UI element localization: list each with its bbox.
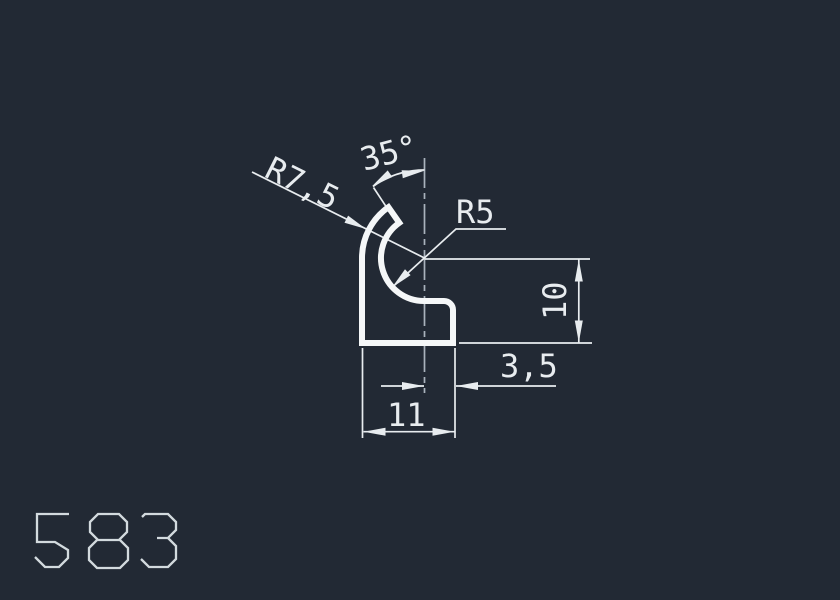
arrowhead <box>402 170 424 178</box>
arrowhead <box>575 321 583 343</box>
step-width-label: 3,5 <box>500 347 558 385</box>
overall-width-label: 11 <box>387 396 426 434</box>
height-label: 10 <box>536 281 574 320</box>
dimension-step-width: 3,5 <box>381 347 558 390</box>
arrowhead <box>433 428 455 436</box>
technical-drawing-canvas: 35° R7,5 R5 10 3,5 <box>0 0 840 600</box>
inner-radius-label: R5 <box>456 193 495 231</box>
arrowhead <box>345 216 367 229</box>
outer-radius-label: R7,5 <box>259 149 345 217</box>
dimension-tip-angle: 35° <box>356 127 424 211</box>
arrowhead <box>575 260 583 282</box>
dimension-overall-width: 11 <box>363 348 456 438</box>
part-number-glyph-3 <box>141 514 176 567</box>
arrowhead <box>402 382 424 390</box>
dimension-inner-radius: R5 <box>392 193 506 288</box>
arrowhead <box>364 428 386 436</box>
cad-viewport[interactable]: 35° R7,5 R5 10 3,5 <box>0 0 840 600</box>
part-number-glyph-8 <box>89 514 128 568</box>
arrowhead <box>456 382 478 390</box>
part-number: 583 <box>35 514 176 570</box>
